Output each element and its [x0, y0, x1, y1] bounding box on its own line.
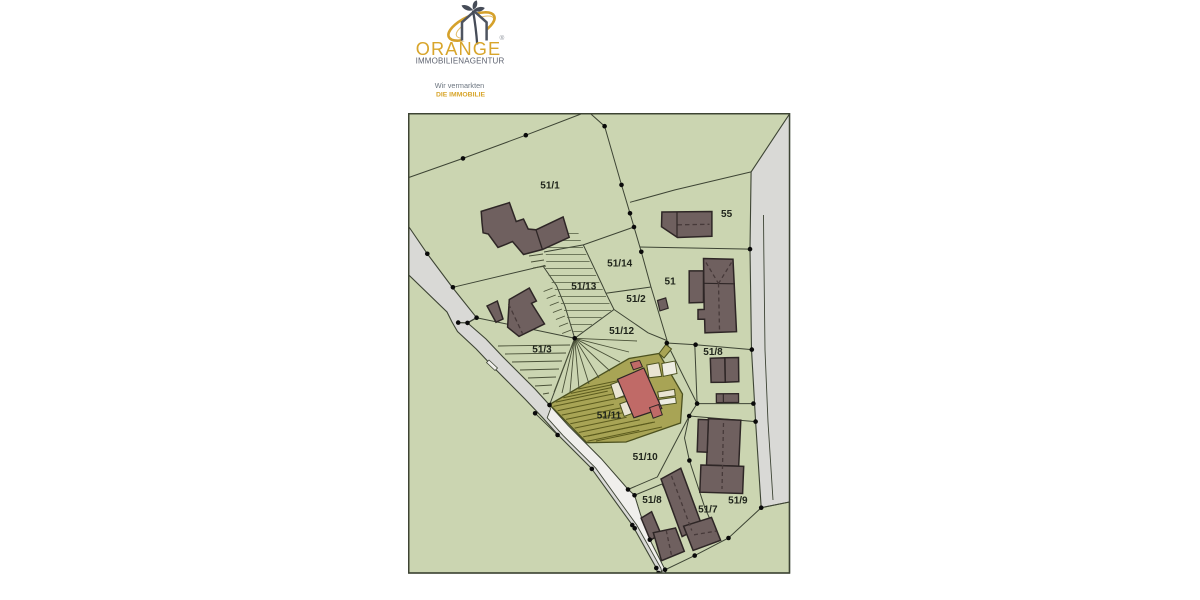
svg-text:51/8: 51/8 — [642, 495, 662, 506]
svg-text:51/1: 51/1 — [540, 181, 560, 192]
svg-text:51/10: 51/10 — [633, 452, 658, 463]
svg-text:51/3: 51/3 — [532, 345, 552, 356]
svg-text:51/7: 51/7 — [698, 505, 718, 516]
svg-text:51/2: 51/2 — [626, 294, 646, 305]
svg-text:51/12: 51/12 — [609, 326, 634, 337]
svg-text:IMMOBILIENAGENTUR: IMMOBILIENAGENTUR — [416, 56, 505, 65]
svg-text:51/14: 51/14 — [607, 259, 632, 270]
svg-text:51/13: 51/13 — [571, 282, 596, 293]
svg-text:Wir vermarkten: Wir vermarkten — [435, 81, 484, 90]
svg-text:DIE IMMOBILIE: DIE IMMOBILIE — [436, 92, 486, 99]
svg-text:51/8: 51/8 — [703, 347, 723, 358]
svg-text:55: 55 — [721, 209, 733, 220]
svg-text:51: 51 — [665, 277, 677, 288]
svg-text:®: ® — [500, 34, 505, 42]
svg-text:51/9: 51/9 — [728, 496, 748, 507]
svg-text:51/11: 51/11 — [597, 411, 622, 422]
